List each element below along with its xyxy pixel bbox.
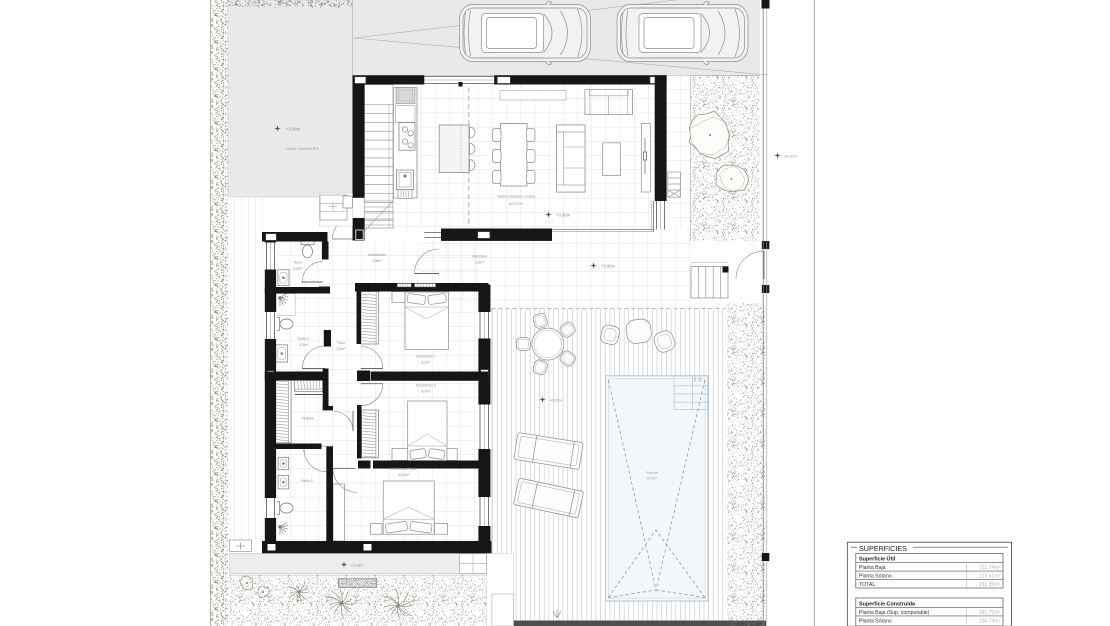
svg-text:185.75m²: 185.75m² [979,610,1000,616]
svg-text:Recibidor: Recibidor [472,255,488,259]
svg-text:10,6m²: 10,6m² [398,473,410,477]
svg-text:111.74m²: 111.74m² [980,565,1001,571]
svg-text:Dormitorio 1: Dormitorio 1 [416,355,436,359]
svg-text:Distribuidor: Distribuidor [368,253,387,257]
svg-text:+0,80m: +0,80m [601,264,616,269]
svg-text:Planta Baja (Sup. computable): Planta Baja (Sup. computable) [859,610,930,616]
svg-text:136.74m²: 136.74m² [979,618,1000,624]
svg-text:Piscina: Piscina [646,471,658,475]
svg-text:Dormitorio Ppal.: Dormitorio Ppal. [391,467,417,471]
svg-text:Planta Sótano: Planta Sótano [859,574,892,580]
svg-text:28.2m²: 28.2m² [646,477,658,481]
svg-text:ZONA LAVADERO: ZONA LAVADERO [285,147,318,151]
svg-text:Baño 1: Baño 1 [298,337,309,341]
svg-text:Baño 2: Baño 2 [301,479,312,483]
svg-text:231.35m²: 231.35m² [979,582,1000,588]
svg-text:Dormitorio 2: Dormitorio 2 [416,384,436,388]
svg-text:62,37m²: 62,37m² [509,202,524,206]
svg-text:Planta Baja: Planta Baja [859,565,886,571]
svg-text:6,8m²: 6,8m² [372,259,382,263]
svg-text:Planta Sótano: Planta Sótano [859,618,892,624]
svg-text:2,0m²: 2,0m² [293,267,303,271]
svg-text:Aseo: Aseo [294,261,302,265]
svg-text:Paso: Paso [337,341,345,345]
svg-text:Superficie Construida: Superficie Construida [859,601,916,607]
svg-text:119.61m²: 119.61m² [979,574,1000,580]
svg-text:Superficie Útil: Superficie Útil [859,556,896,563]
svg-text:Salón comedor cocina: Salón comedor cocina [497,195,535,199]
svg-text:8,5m²: 8,5m² [421,361,431,365]
svg-text:+0,80m: +0,80m [556,212,571,217]
svg-text:+0,18m: +0,18m [351,563,364,567]
svg-text:3,5m²: 3,5m² [336,347,346,351]
svg-text:+0,05m: +0,05m [549,398,562,402]
svg-text:±0,00m: ±0,00m [784,154,797,158]
svg-text:SUPERFICIES: SUPERFICIES [859,544,907,553]
svg-text:+0,48m: +0,48m [286,127,301,132]
svg-text:8,0m²: 8,0m² [421,390,431,394]
svg-text:3,6m²: 3,6m² [475,261,485,265]
svg-text:4,5m²: 4,5m² [299,343,309,347]
svg-text:Vestidor: Vestidor [302,417,316,421]
svg-text:TOTAL: TOTAL [859,582,875,588]
